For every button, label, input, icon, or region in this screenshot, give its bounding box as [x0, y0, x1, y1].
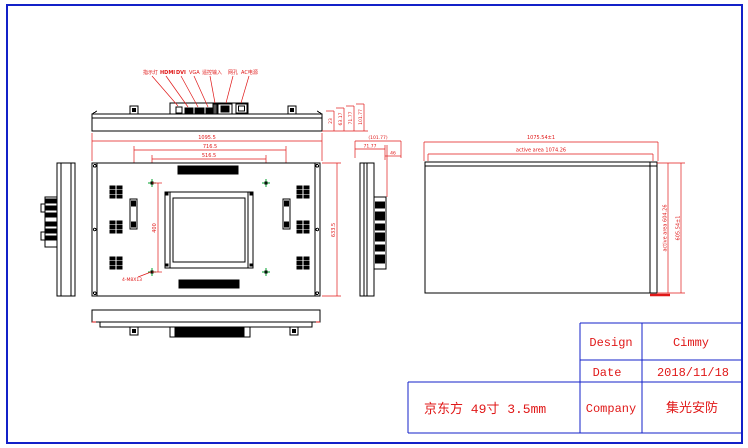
bracket-offset-dim: 46	[390, 151, 396, 157]
hdmi-port	[185, 108, 193, 113]
left-side-view	[41, 163, 75, 296]
mesh-port	[221, 106, 229, 112]
connector-housing	[170, 103, 248, 114]
panel-front-view	[425, 162, 657, 293]
top-foot-left	[130, 106, 138, 114]
aux-port	[213, 104, 217, 114]
top-foot-right	[288, 106, 296, 114]
bottom-view	[92, 310, 320, 337]
bottom-vent-strip	[179, 280, 239, 288]
date-value: 2018/11/18	[657, 366, 729, 380]
panel-outline-height-dim: 605.54±1	[676, 216, 682, 241]
top-view	[92, 103, 322, 131]
vesa-height-dim: 400	[152, 223, 158, 233]
vesa-width-dim: 516.5	[202, 153, 216, 159]
date-label: Date	[593, 366, 622, 380]
label-vga: VGA	[189, 70, 200, 76]
connector-callouts	[152, 76, 249, 107]
bottom-connector-strip	[175, 328, 244, 336]
top-vent-strip	[178, 166, 238, 174]
drawing-page: 指示灯 HDMI DVI VGA 遥控输入 网孔 AC电源 23 63.17 7…	[0, 0, 748, 448]
bracket-depth-dim: 71.77	[364, 144, 377, 150]
bottom-foot-right	[290, 327, 298, 335]
panel-active-width-dim: active area 1074.26	[516, 148, 566, 154]
mount-slot-left	[130, 199, 137, 229]
bracket-overall-dim: (101.77)	[368, 135, 388, 141]
design-label: Design	[589, 336, 632, 350]
mount-slot-right	[283, 199, 290, 229]
cad-drawing: 指示灯 HDMI DVI VGA 遥控输入 网孔 AC电源 23 63.17 7…	[0, 0, 748, 448]
bottom-foot-left	[130, 327, 138, 335]
depth-dim-1: 23	[328, 118, 334, 124]
label-dvi: DVI	[176, 70, 186, 76]
label-mesh: 网孔	[228, 69, 238, 76]
right-side-view	[360, 163, 386, 296]
overall-width-dim: 1095.5	[198, 135, 216, 141]
company-label: Company	[586, 402, 636, 416]
label-ac-power: AC电源	[241, 69, 258, 76]
design-value: Cimmy	[673, 336, 709, 350]
label-hdmi: HDMI	[160, 70, 175, 76]
label-indicator: 指示灯	[143, 69, 158, 76]
screw-note: 4-M8X13	[122, 277, 142, 283]
company-value: 集光安防	[666, 400, 718, 416]
panel-outline-width-dim: 1075.54±1	[527, 135, 555, 141]
mount-width-dim: 716.5	[203, 144, 217, 150]
label-remote-in: 遥控输入	[202, 69, 222, 76]
back-view	[92, 163, 320, 296]
panel-active-height-dim: active area 604.26	[663, 204, 669, 251]
depth-dim-3: 71.77	[348, 111, 354, 124]
panel-note: 京东方 49寸 3.5mm	[424, 401, 546, 417]
vga-port	[206, 108, 212, 113]
dvi-port	[195, 108, 204, 113]
overall-height-dim: 633.5	[331, 223, 337, 237]
depth-dim-4: 101.77	[358, 109, 364, 125]
depth-dim-2: 63.17	[338, 112, 344, 125]
